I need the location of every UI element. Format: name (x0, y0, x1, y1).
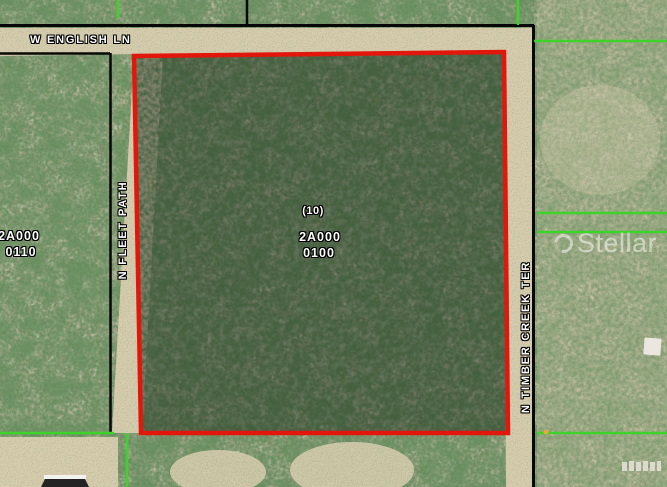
map-graphics (0, 0, 667, 487)
building-roof-southwest (41, 479, 89, 487)
aerial-map: W ENGLISH LN N FLEET PATH N TIMBER CREEK… (0, 0, 667, 487)
building-roof-east (643, 337, 661, 355)
grain-overlay (0, 0, 667, 487)
building-roof-ridge (44, 475, 86, 479)
orange-marker (544, 430, 549, 435)
